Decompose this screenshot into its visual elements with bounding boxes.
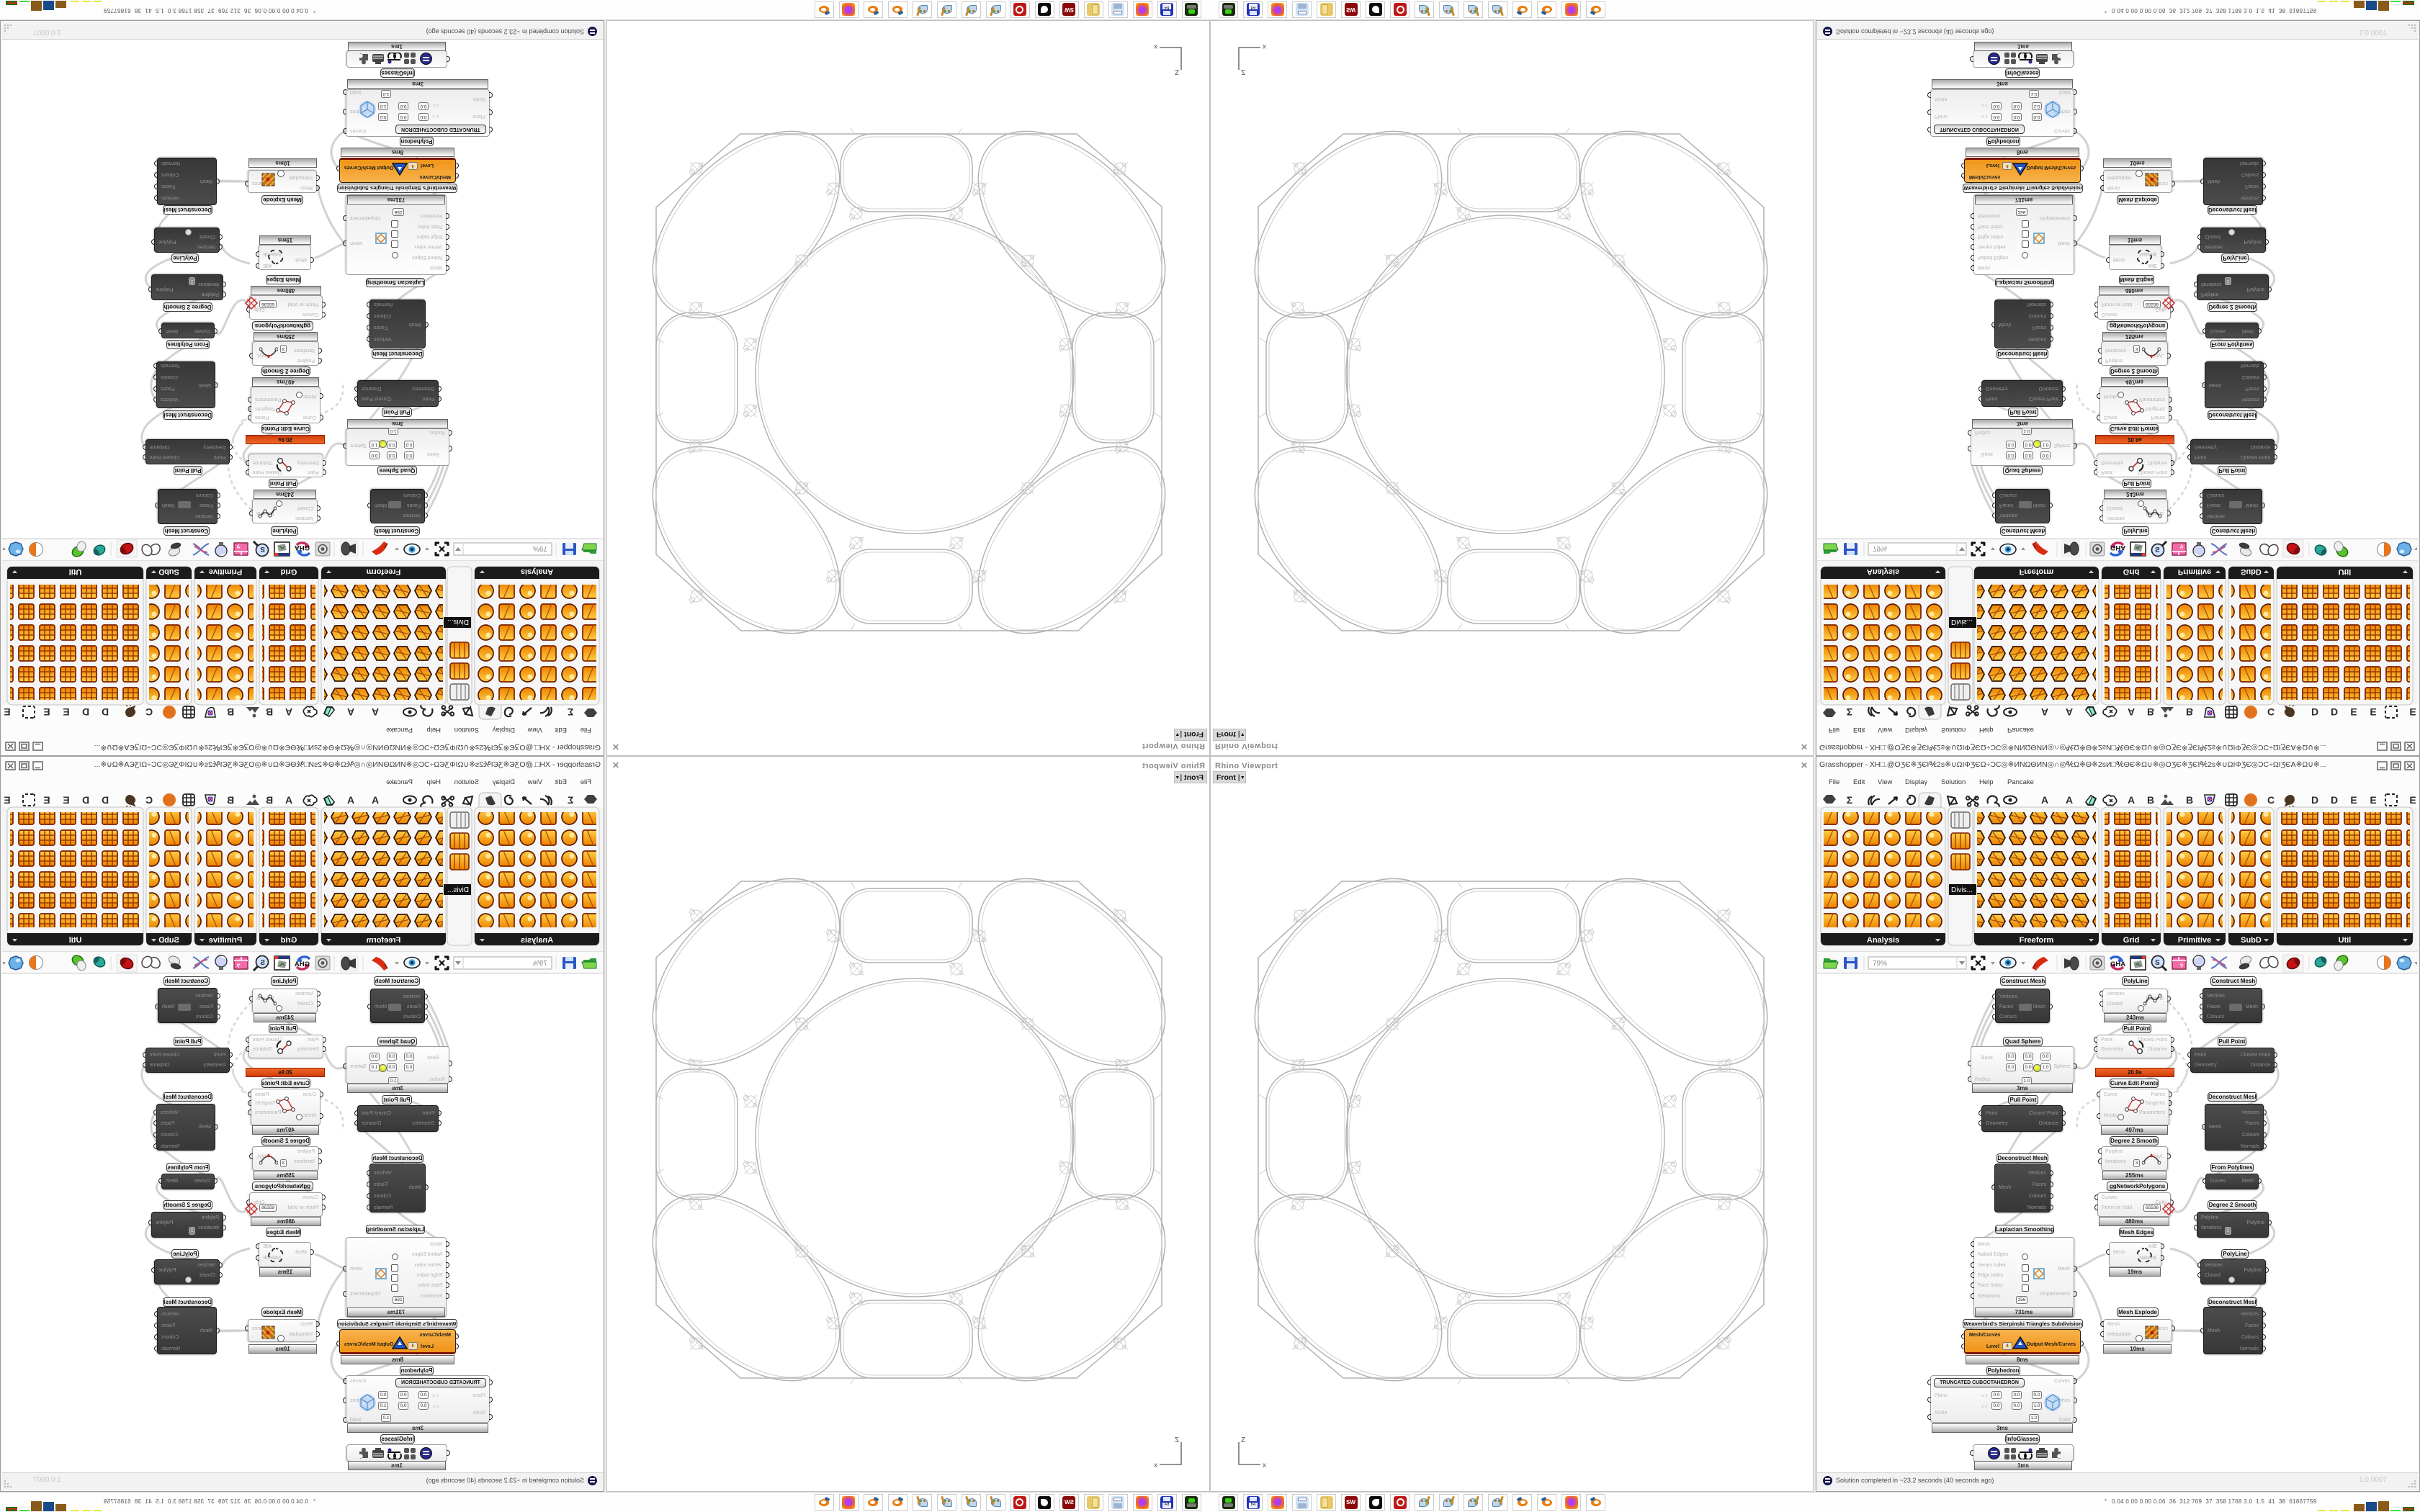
svg-text:79%: 79% <box>533 544 547 552</box>
svg-text:C: C <box>145 706 153 718</box>
svg-text:D: D <box>82 794 89 806</box>
svg-text:E: E <box>63 706 69 718</box>
svg-text:Z: Z <box>1175 68 1179 76</box>
svg-text:E: E <box>2350 794 2357 806</box>
svg-text:E: E <box>2370 706 2376 718</box>
svg-text:B: B <box>266 706 273 718</box>
svg-text:Analysis: Analysis <box>1867 567 1899 576</box>
svg-text:Σ: Σ <box>568 794 573 806</box>
svg-text:Util: Util <box>69 567 82 576</box>
svg-text:?: ? <box>237 963 241 970</box>
svg-text:?: ? <box>237 542 241 549</box>
svg-text:S: S <box>260 959 265 967</box>
svg-text:A: A <box>2066 794 2073 806</box>
svg-text:79%: 79% <box>533 960 547 968</box>
svg-text:S: S <box>2155 959 2160 967</box>
svg-text:SubD: SubD <box>2241 936 2262 945</box>
svg-text:Σ: Σ <box>568 706 573 718</box>
svg-text:E: E <box>4 706 10 718</box>
svg-text:E: E <box>2370 794 2376 806</box>
svg-text:79%: 79% <box>1873 544 1887 552</box>
svg-text:Analysis: Analysis <box>521 567 553 576</box>
svg-text:Analysis: Analysis <box>1867 936 1899 945</box>
svg-text:C: C <box>145 794 153 806</box>
svg-text:C: C <box>2267 794 2275 806</box>
svg-text:A: A <box>372 794 379 806</box>
svg-text:B: B <box>227 794 234 806</box>
svg-text:A: A <box>2128 794 2135 806</box>
svg-text:GHA: GHA <box>2110 960 2125 968</box>
svg-text:A: A <box>2066 706 2073 718</box>
svg-text:D: D <box>2311 706 2318 718</box>
svg-text:?: ? <box>2179 542 2184 549</box>
svg-text:D: D <box>2331 706 2338 718</box>
svg-text:B: B <box>2147 794 2154 806</box>
svg-text:A: A <box>285 706 292 718</box>
svg-text:Freeform: Freeform <box>366 567 400 576</box>
svg-text:x: x <box>1154 1462 1157 1469</box>
svg-text:Grid: Grid <box>281 936 297 945</box>
svg-text:Σ: Σ <box>1847 794 1852 806</box>
svg-text:Primitive: Primitive <box>2178 936 2211 945</box>
svg-text:D: D <box>82 706 89 718</box>
svg-text:Divis...: Divis... <box>447 618 469 626</box>
svg-text:Freeform: Freeform <box>2020 567 2054 576</box>
svg-text:Divis...: Divis... <box>447 886 469 894</box>
svg-text:Σ: Σ <box>1847 706 1852 718</box>
svg-text:Divis...: Divis... <box>1951 886 1973 894</box>
svg-text:Util: Util <box>2339 936 2352 945</box>
svg-text:E: E <box>2409 706 2416 718</box>
svg-text:A: A <box>2041 794 2048 806</box>
svg-text:A: A <box>347 794 354 806</box>
svg-text:B: B <box>266 794 273 806</box>
svg-text:Freeform: Freeform <box>366 936 400 945</box>
svg-text:A: A <box>372 706 379 718</box>
svg-text:SubD: SubD <box>158 936 179 945</box>
svg-text:B: B <box>2147 706 2154 718</box>
svg-text:Z: Z <box>1241 68 1245 76</box>
svg-text:D: D <box>102 706 109 718</box>
svg-text:Grid: Grid <box>2123 567 2140 576</box>
svg-text:E: E <box>63 794 69 806</box>
svg-text:Util: Util <box>2339 567 2352 576</box>
svg-text:E: E <box>43 706 50 718</box>
svg-text:Primitive: Primitive <box>209 567 242 576</box>
svg-text:GHA: GHA <box>295 960 310 968</box>
svg-text:A: A <box>347 706 354 718</box>
svg-text:E: E <box>43 794 50 806</box>
svg-text:S: S <box>260 545 265 553</box>
svg-text:E: E <box>2409 794 2416 806</box>
svg-text:Freeform: Freeform <box>2020 936 2054 945</box>
svg-text:C: C <box>2267 706 2275 718</box>
svg-text:B: B <box>227 706 234 718</box>
svg-text:Z: Z <box>1175 1436 1179 1444</box>
svg-text:A: A <box>2041 706 2048 718</box>
svg-text:79%: 79% <box>1873 960 1887 968</box>
svg-text:A: A <box>2128 706 2135 718</box>
svg-text:Grid: Grid <box>2123 936 2140 945</box>
svg-text:GHA: GHA <box>2110 544 2125 552</box>
svg-text:GHA: GHA <box>295 544 310 552</box>
svg-text:B: B <box>2186 706 2193 718</box>
svg-text:Divis...: Divis... <box>1951 618 1973 626</box>
svg-text:D: D <box>2331 794 2338 806</box>
svg-text:x: x <box>1263 43 1266 50</box>
svg-text:x: x <box>1154 43 1157 50</box>
svg-text:Primitive: Primitive <box>209 936 242 945</box>
svg-text:E: E <box>4 794 10 806</box>
svg-text:Analysis: Analysis <box>521 936 553 945</box>
svg-text:Primitive: Primitive <box>2178 567 2211 576</box>
svg-text:D: D <box>102 794 109 806</box>
svg-text:?: ? <box>2179 963 2184 970</box>
svg-text:Z: Z <box>1241 1436 1245 1444</box>
svg-text:Grid: Grid <box>281 567 297 576</box>
svg-text:SubD: SubD <box>158 567 179 576</box>
svg-text:Util: Util <box>69 936 82 945</box>
svg-text:SubD: SubD <box>2241 567 2262 576</box>
svg-text:S: S <box>2155 545 2160 553</box>
svg-text:D: D <box>2311 794 2318 806</box>
svg-text:E: E <box>2350 706 2357 718</box>
svg-text:B: B <box>2186 794 2193 806</box>
svg-text:x: x <box>1263 1462 1266 1469</box>
svg-text:A: A <box>285 794 292 806</box>
